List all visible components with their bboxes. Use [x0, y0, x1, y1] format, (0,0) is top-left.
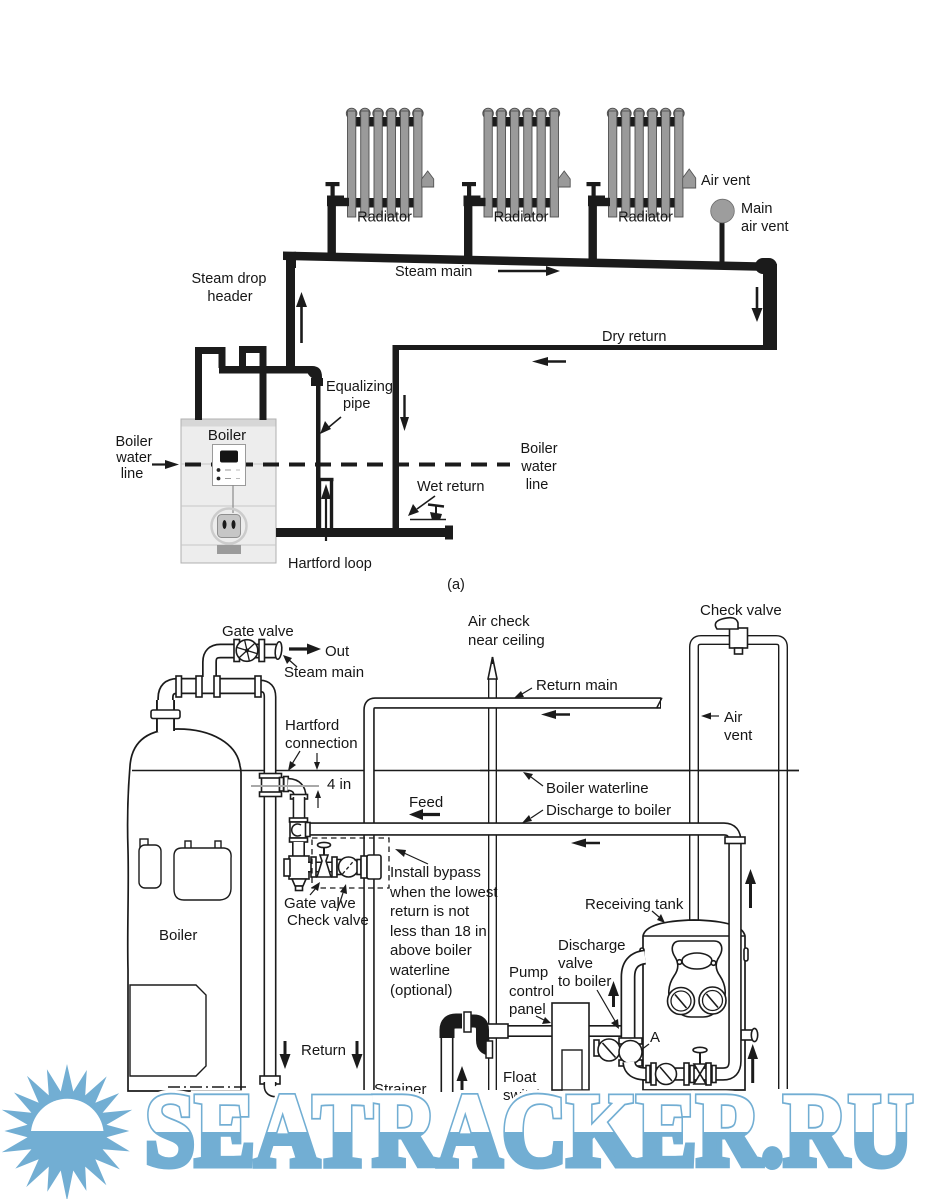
svg-text:Pump: Pump — [509, 964, 548, 981]
svg-text:Equalizing: Equalizing — [326, 379, 393, 395]
svg-text:Main: Main — [741, 201, 772, 217]
svg-text:A: A — [650, 1029, 660, 1046]
svg-text:Boiler: Boiler — [115, 434, 152, 450]
svg-text:Discharge to boiler: Discharge to boiler — [546, 802, 671, 819]
svg-text:Return main: Return main — [536, 677, 618, 694]
svg-text:Radiator: Radiator — [357, 210, 412, 226]
svg-text:Hartford loop: Hartford loop — [288, 556, 372, 572]
svg-text:Discharge: Discharge — [558, 937, 626, 954]
svg-text:control: control — [509, 983, 554, 1000]
svg-text:waterline: waterline — [389, 962, 450, 979]
svg-text:Boiler: Boiler — [159, 927, 197, 944]
svg-text:panel: panel — [509, 1001, 546, 1018]
svg-text:Radiator: Radiator — [618, 210, 673, 226]
svg-text:Boiler waterline: Boiler waterline — [546, 780, 649, 797]
svg-text:Receiving tank: Receiving tank — [585, 896, 684, 913]
svg-text:pipe: pipe — [343, 396, 370, 412]
svg-text:water: water — [115, 450, 152, 466]
svg-text:Steam drop: Steam drop — [192, 271, 267, 287]
svg-text:header: header — [207, 289, 252, 305]
svg-text:Radiator: Radiator — [494, 210, 549, 226]
svg-text:less than 18 in: less than 18 in — [390, 923, 487, 940]
svg-text:Steam main: Steam main — [395, 264, 472, 280]
svg-text:(a): (a) — [447, 577, 465, 593]
svg-text:Wet return: Wet return — [417, 479, 484, 495]
svg-text:Air vent: Air vent — [701, 173, 750, 189]
svg-text:Check valve: Check valve — [287, 912, 369, 929]
svg-text:line: line — [526, 477, 549, 493]
svg-text:Check valve: Check valve — [700, 602, 782, 619]
svg-text:(optional): (optional) — [390, 982, 453, 999]
svg-text:line: line — [121, 466, 144, 482]
svg-text:above boiler: above boiler — [390, 942, 472, 959]
svg-text:connection: connection — [285, 735, 358, 752]
svg-text:water: water — [520, 459, 557, 475]
svg-text:valve: valve — [558, 955, 593, 972]
svg-text:Boiler: Boiler — [208, 427, 246, 444]
svg-text:Air check: Air check — [468, 613, 530, 630]
svg-text:vent: vent — [724, 727, 753, 744]
svg-text:air vent: air vent — [741, 219, 789, 235]
svg-text:Return: Return — [301, 1042, 346, 1059]
svg-text:Gate valve: Gate valve — [284, 895, 356, 912]
svg-text:Out: Out — [325, 643, 350, 660]
svg-text:when the lowest: when the lowest — [389, 884, 498, 901]
svg-text:to boiler: to boiler — [558, 973, 611, 990]
svg-text:Gate valve: Gate valve — [222, 623, 294, 640]
svg-text:Hartford: Hartford — [285, 717, 339, 734]
svg-text:near ceiling: near ceiling — [468, 632, 545, 649]
svg-text:Air: Air — [724, 709, 742, 726]
svg-text:Feed: Feed — [409, 794, 443, 811]
svg-text:Boiler: Boiler — [520, 441, 557, 457]
svg-text:Install bypass: Install bypass — [390, 864, 481, 881]
svg-text:return is not: return is not — [390, 903, 470, 920]
svg-text:Dry return: Dry return — [602, 329, 666, 345]
svg-text:4 in: 4 in — [327, 776, 351, 793]
